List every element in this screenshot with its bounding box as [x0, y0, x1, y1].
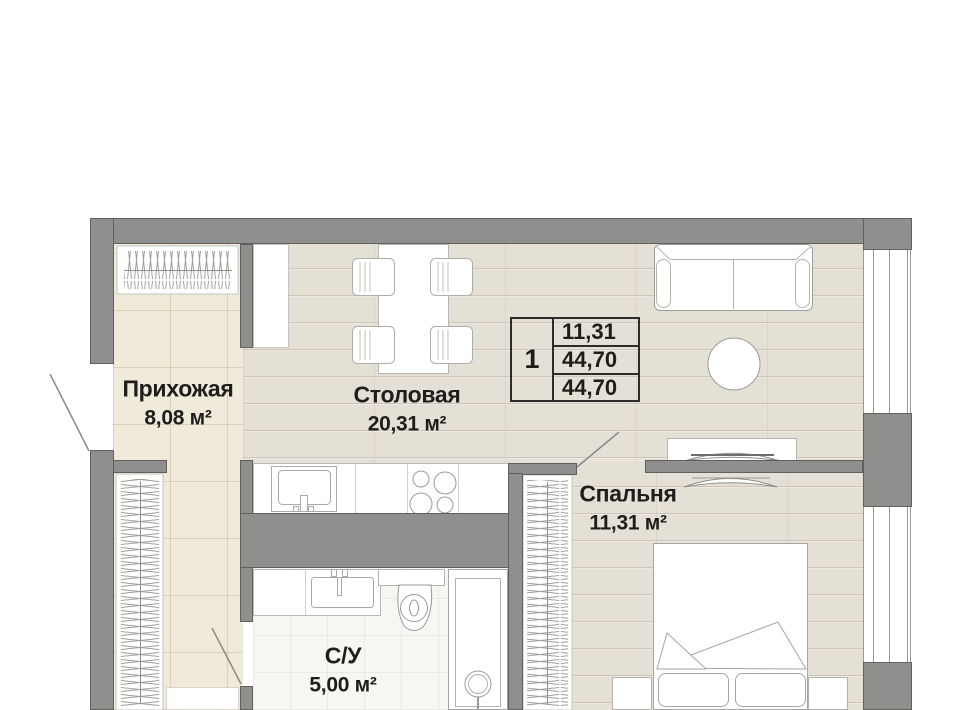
toilet	[379, 570, 445, 631]
wall-hall-stub	[113, 460, 167, 473]
room-area: 11,31 м²	[579, 511, 676, 535]
room-name: Столовая	[353, 382, 460, 408]
area-table-row: 44,70	[554, 373, 638, 401]
room-area: 5,00 м²	[309, 673, 376, 697]
nightstand	[809, 678, 848, 710]
bedroom-door-swing	[577, 432, 619, 467]
sofa	[655, 245, 813, 311]
nightstand	[613, 678, 652, 710]
rooms-count: 1	[512, 319, 554, 400]
pillow	[659, 674, 729, 707]
chair	[353, 327, 395, 364]
wall-bath-right	[508, 473, 523, 710]
wardrobe-hall-top	[117, 246, 238, 294]
wall-left-upper	[90, 218, 114, 364]
area-table-rows: 11,31 44,70 44,70	[554, 319, 638, 400]
dining-label: Столовая 20,31 м²	[353, 382, 460, 435]
bathroom-door-leaf	[167, 688, 239, 710]
chair	[431, 259, 473, 296]
wall-kitchen-bath	[240, 513, 520, 568]
furniture-layer	[0, 0, 960, 710]
round-table	[708, 338, 760, 390]
shower	[449, 570, 508, 710]
wall-left-lower	[90, 450, 114, 710]
wardrobe-bedroom	[523, 475, 572, 710]
wall-pier-bottom	[863, 662, 912, 710]
kitchen-counter	[254, 464, 512, 516]
area-table-row: 44,70	[554, 345, 638, 373]
vanity-sink	[254, 570, 381, 616]
chair	[353, 259, 395, 296]
wall-dining-bedroom	[645, 460, 863, 473]
wall-bath-left-bottom	[240, 686, 253, 710]
wardrobe-hall-left	[116, 474, 163, 710]
kitchen-sink	[272, 467, 337, 512]
room-area: 20,31 м²	[353, 412, 460, 436]
room-area: 8,08 м²	[122, 406, 233, 430]
chair	[431, 327, 473, 364]
wall-dining-left-upper	[240, 244, 253, 348]
room-name: С/У	[309, 643, 376, 669]
tv-icon	[684, 479, 777, 488]
pillow	[736, 674, 806, 707]
room-name: Прихожая	[122, 376, 233, 402]
fridge-cabinet	[254, 245, 289, 348]
entrance-door-swing	[50, 374, 89, 451]
bathroom-door-swing	[212, 628, 241, 684]
bathroom-fixtures	[254, 570, 508, 710]
wall-pier-mid	[863, 413, 912, 507]
wall-pier-top	[863, 218, 912, 250]
dining-table-set	[353, 245, 473, 374]
wall-top	[90, 218, 912, 244]
floor-plan: Прихожая 8,08 м² Столовая 20,31 м² Спаль…	[0, 0, 960, 710]
bathroom-label: С/У 5,00 м²	[309, 643, 376, 696]
room-name: Спальня	[579, 481, 676, 507]
area-table-row: 11,31	[554, 319, 638, 345]
area-table: 1 11,31 44,70 44,70	[510, 317, 640, 402]
bedroom-label: Спальня 11,31 м²	[579, 481, 676, 534]
bed	[654, 544, 808, 710]
hallway-label: Прихожая 8,08 м²	[122, 376, 233, 429]
